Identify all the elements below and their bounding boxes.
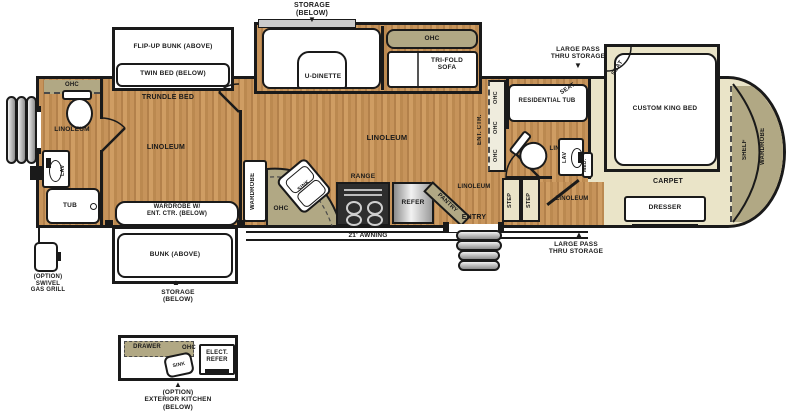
rear-tub-drain [90,203,97,210]
rear-lav-label: LAV [60,160,68,180]
front-wardrobe-label: WARDROBE [760,112,770,180]
rear-lav: LAV [42,150,70,188]
range-grill-line [344,189,382,191]
rear-toilet-bowl [66,98,93,129]
ext-sink-label: SINK [167,361,192,371]
ext-sink: SINK [163,351,195,378]
pass-thru-bottom-label: LARGE PASS THRU STORAGE [532,241,620,256]
bunk-slide-jamb-right [237,220,245,228]
dinette-sofa-slide: U-DINETTE OHC TRI-FOLD SOFA [254,22,482,94]
ext-refer-base [205,369,229,373]
range-label: RANGE [336,173,390,180]
rear-bath-wall-upper [100,79,103,119]
refer-label: REFER [392,199,434,206]
ent-ctr-ohc-3: OHC [493,144,502,168]
rear-step-3 [26,96,37,164]
bunk-slide-jamb-left [105,220,113,228]
range [336,182,390,226]
trundle-bed-label: TRUNDLE BED [126,94,210,102]
rv-floor-plan: FLIP-UP BUNK (ABOVE) TWIN BED (BELOW) U-… [0,0,800,411]
flip-up-bunk-slide: FLIP-UP BUNK (ABOVE) TWIN BED (BELOW) [112,27,234,91]
ext-kitchen-label: (OPTION) EXTERIOR KITCHEN (BELOW) [123,389,233,411]
ext-refer-label: ELECT. REFER [201,350,233,363]
ext-drawer-label: DRAWER [125,344,169,351]
pass-thru-bottom-arrow: ▲ [571,231,587,240]
gas-grill-knob [56,252,61,261]
bunkroom-kitchen-wall [239,110,242,226]
dinette-table [297,51,347,89]
twin-bed-label: TWIN BED (BELOW) [117,70,229,77]
sofa-ohc-label: OHC [386,35,478,42]
residential-tub-label: RESIDENTIAL TUB [508,98,586,105]
range-grill-line2 [344,194,382,196]
front-cap-dashed-edge [730,86,732,222]
king-bed-slide: CUSTOM KING BED SEAT [604,44,720,172]
range-burner-1 [346,201,362,215]
step-1-label: STEP [507,186,516,214]
main-entry-label: ENTRY [450,214,498,222]
kitchen-ohc-label: OHC [264,205,298,212]
flip-up-bunk-label: FLIP-UP BUNK (ABOVE) [117,43,229,50]
tri-fold-sofa-label: TRI-FOLD SOFA [417,57,477,72]
rear-tub-label: TUB [46,202,94,209]
rear-linoleum-label: LINOLEUM [42,126,102,133]
awning-label: 21' AWNING [318,232,418,239]
bunk-slide: BUNK (ABOVE) [112,226,238,284]
wardrobe-ent-ctr-label: WARDROBE W/ ENT. CTR. (BELOW) [119,204,235,217]
main-linoleum-label: LINOLEUM [352,134,422,142]
steps-linoleum-label: LINOLEUM [548,196,596,203]
med-label: MED. [583,155,591,175]
gas-grill [34,242,58,272]
rear-utility-box [30,166,42,180]
rear-bath-ohc-label: OHC [44,82,100,89]
range-burner-2 [367,201,383,215]
ent-ctr-ohc-2: OHC [493,116,502,140]
dresser-base [632,224,698,226]
entry-linoleum-label: LINOLEUM [450,184,498,191]
king-bed-label: CUSTOM KING BED [615,105,715,112]
entry-jamb-left [443,222,449,232]
carpet-label: CARPET [638,178,698,186]
exterior-kitchen-box: DRAWER OHC SINK ELECT. REFER [118,335,238,381]
ent-ctr-ohc-1: OHC [493,86,502,110]
storage-bottom-arrow: ▲ [168,279,184,288]
rear-bath-wall-lower [100,150,103,226]
entry-step-4 [458,260,500,271]
pass-thru-top-arrow: ▼ [570,62,586,71]
storage-top-arrow: ▼ [304,16,320,25]
step-2-label: STEP [526,186,535,214]
bunkroom-wardrobe-label: WARDROBE [250,166,260,216]
ent-ctr-label: ENT. CTR. [477,106,487,154]
bunkroom-linoleum-label: LINOLEUM [134,144,198,152]
storage-bottom-label: STORAGE (BELOW) [140,289,216,304]
dresser-label: DRESSER [624,204,706,211]
mid-lav-label: LAV [562,147,570,167]
range-burner-3 [346,214,362,226]
range-burner-4 [367,214,383,226]
gas-grill-label: (OPTION) SWIVEL GAS GRILL [10,274,86,294]
dinette-sofa-divider [381,26,384,90]
mid-lav: LAV [558,138,584,176]
ext-refer: ELECT. REFER [199,344,235,375]
u-dinette-label: U-DINETTE [273,73,373,80]
shelf-label: SHELF [742,128,752,172]
ent-ctr-cabinet: OHC OHC OHC [488,80,506,172]
pass-thru-top-label: LARGE PASS THRU STORAGE [534,46,622,61]
bunk-above-label: BUNK (ABOVE) [118,251,232,258]
